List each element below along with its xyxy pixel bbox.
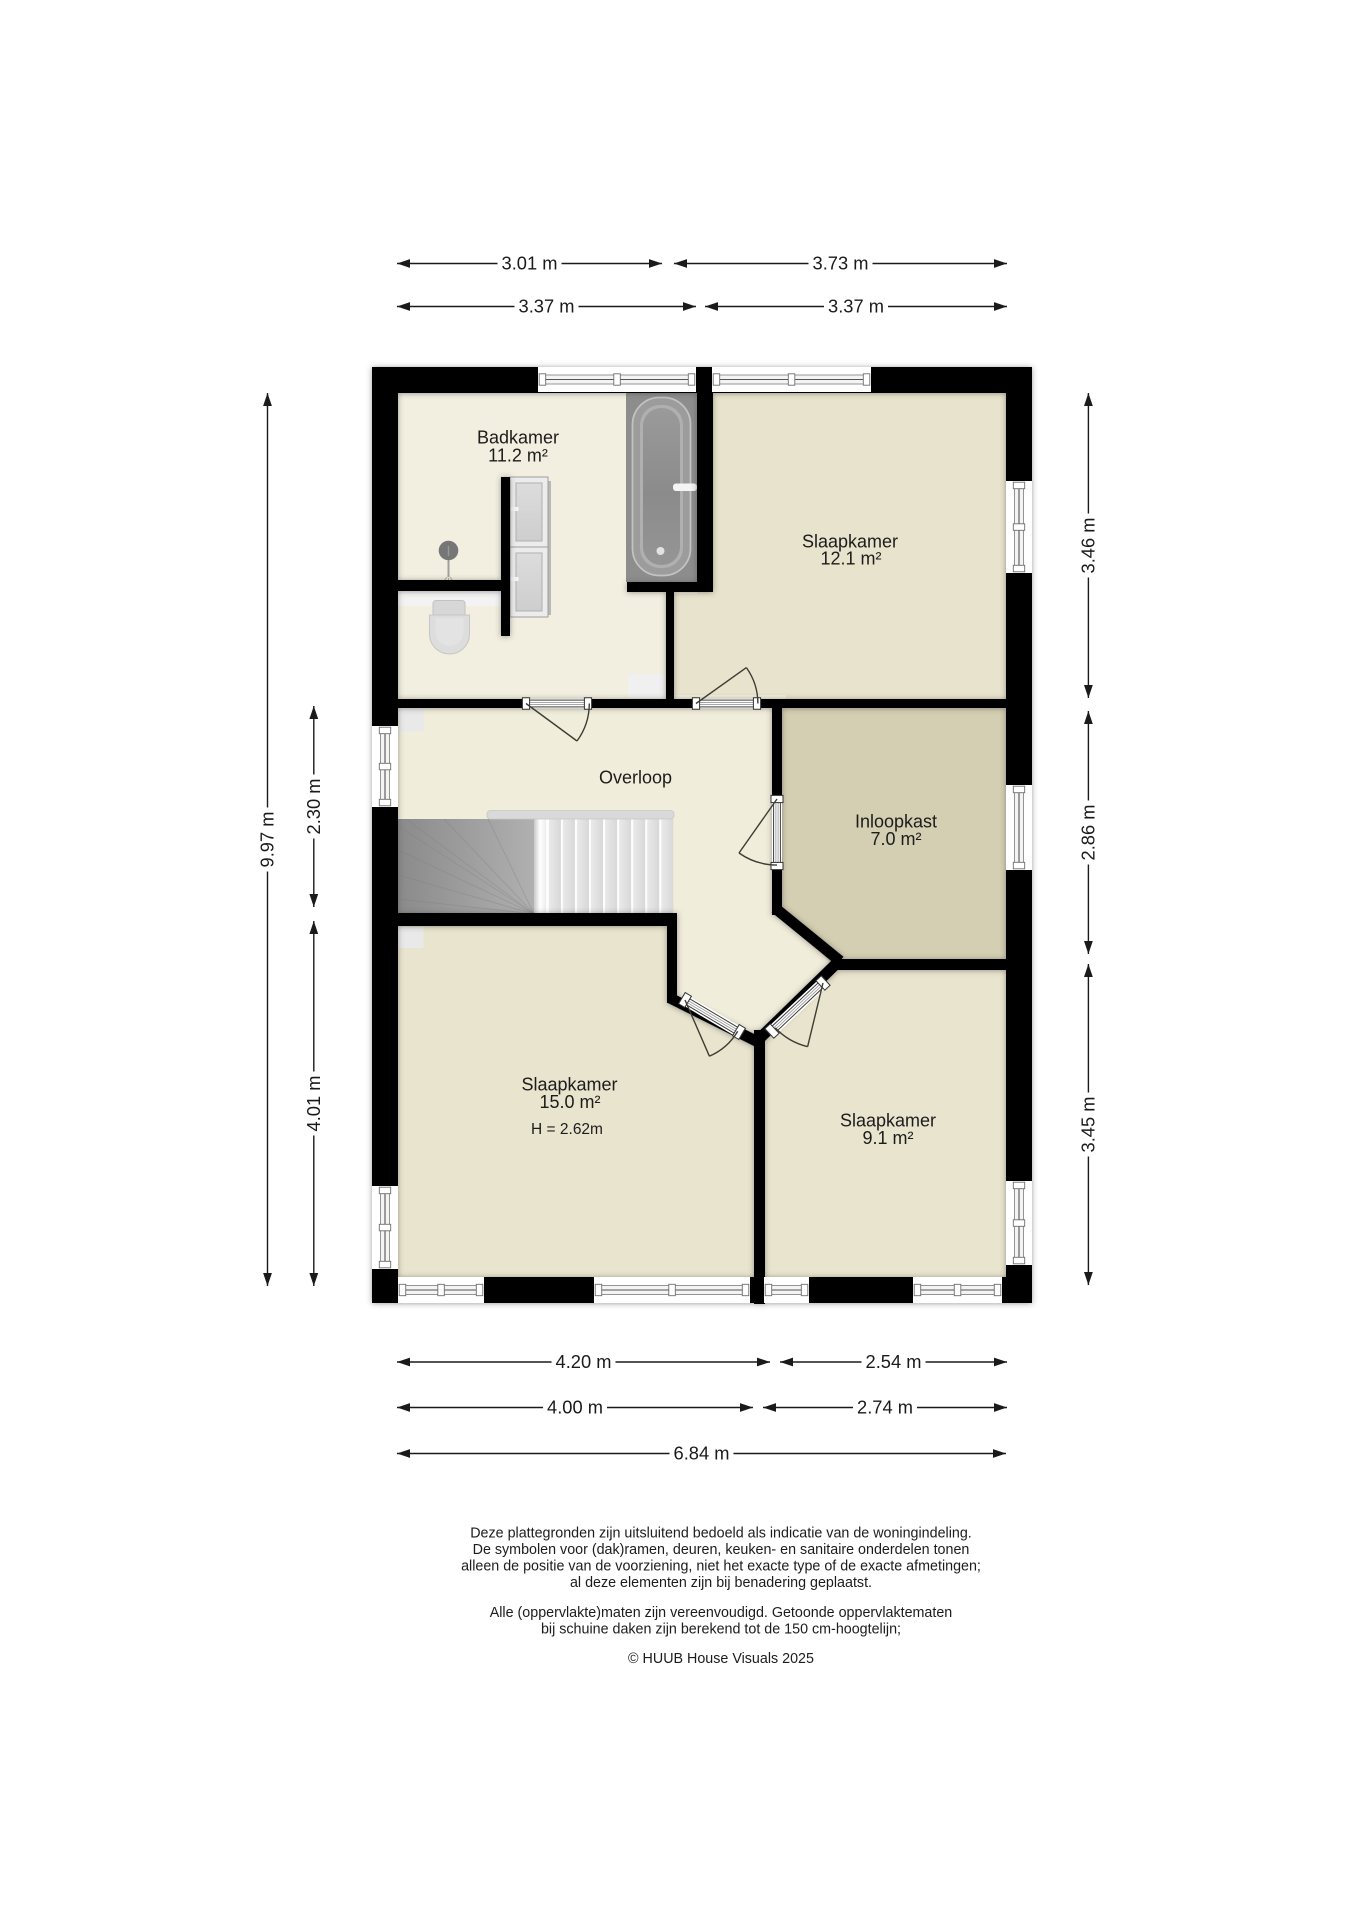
svg-text:6.84 m: 6.84 m [674,1443,730,1464]
svg-text:9.97 m: 9.97 m [257,812,278,868]
svg-text:12.1 m²: 12.1 m² [820,549,881,569]
svg-text:2.30 m: 2.30 m [303,779,324,835]
svg-text:Overloop: Overloop [599,768,672,788]
svg-text:Badkamer: Badkamer [477,428,559,448]
svg-text:11.2 m²: 11.2 m² [488,446,548,466]
svg-text:alleen de positie van de voorz: alleen de positie van de voorziening, ni… [461,1559,981,1575]
svg-text:3.46 m: 3.46 m [1077,518,1098,574]
svg-text:9.1 m²: 9.1 m² [862,1128,913,1148]
svg-text:al deze elementen zijn bij ben: al deze elementen zijn bij benadering ge… [570,1575,872,1591]
svg-text:2.74 m: 2.74 m [857,1397,913,1418]
svg-text:3.01 m: 3.01 m [502,253,558,274]
svg-text:Alle (oppervlakte)maten zijn v: Alle (oppervlakte)maten zijn vereenvoudi… [490,1605,953,1621]
svg-text:2.54 m: 2.54 m [866,1351,922,1372]
svg-text:4.20 m: 4.20 m [556,1351,612,1372]
svg-text:4.00 m: 4.00 m [547,1397,603,1418]
svg-text:2.86 m: 2.86 m [1077,805,1098,861]
svg-text:H = 2.62m: H = 2.62m [531,1121,603,1138]
svg-text:3.45 m: 3.45 m [1077,1097,1098,1153]
svg-text:15.0 m²: 15.0 m² [539,1092,600,1112]
svg-text:4.01 m: 4.01 m [303,1076,324,1132]
svg-text:Deze plattegronden zijn uitslu: Deze plattegronden zijn uitsluitend bedo… [470,1526,972,1542]
svg-text:3.73 m: 3.73 m [813,253,869,274]
svg-text:bij schuine daken zijn bereken: bij schuine daken zijn berekend tot de 1… [541,1622,901,1638]
svg-text:3.37 m: 3.37 m [519,296,575,317]
svg-text:3.37 m: 3.37 m [828,296,884,317]
svg-text:© HUUB House Visuals 2025: © HUUB House Visuals 2025 [628,1651,814,1667]
svg-text:7.0 m²: 7.0 m² [870,829,921,849]
svg-text:De symbolen voor (dak)ramen, d: De symbolen voor (dak)ramen, deuren, keu… [473,1542,970,1558]
